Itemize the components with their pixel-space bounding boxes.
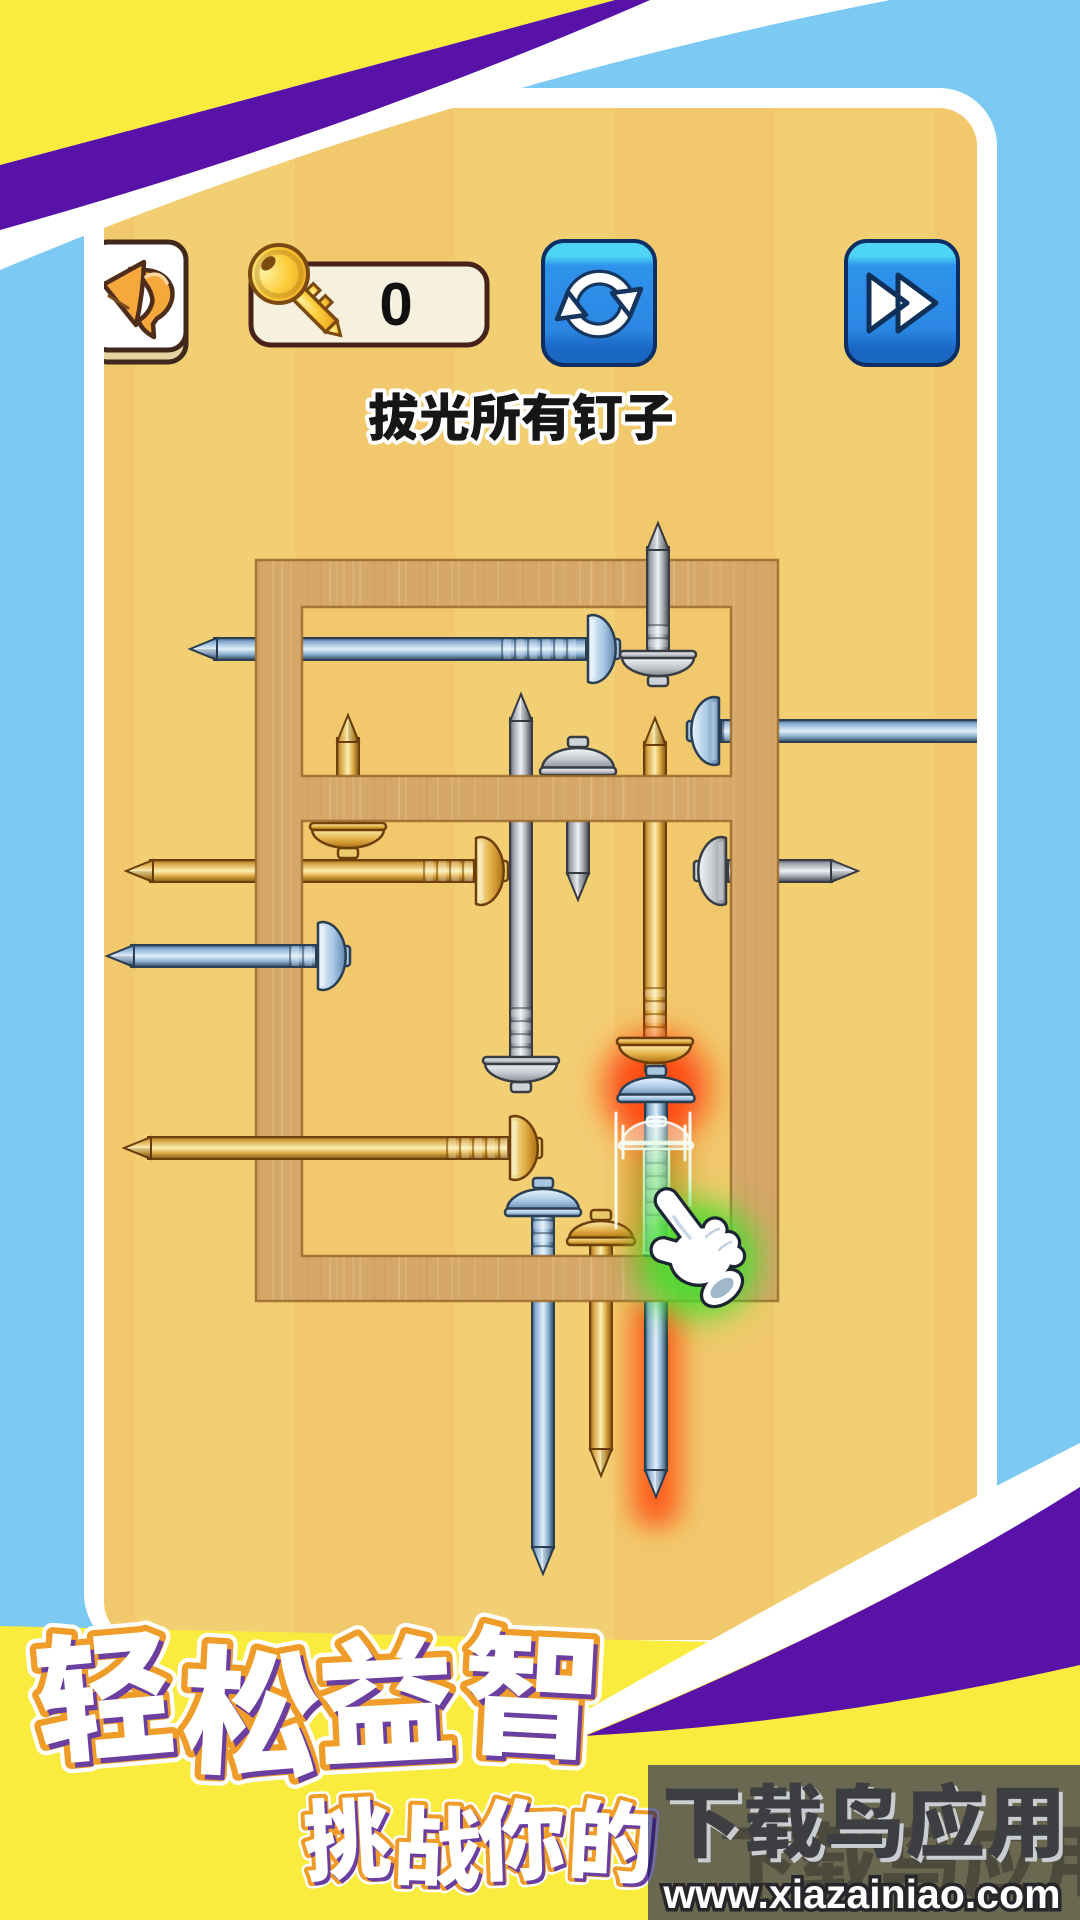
svg-text:www.xiazainiao.com: www.xiazainiao.com [662, 1871, 1060, 1917]
svg-text:0: 0 [379, 271, 412, 338]
